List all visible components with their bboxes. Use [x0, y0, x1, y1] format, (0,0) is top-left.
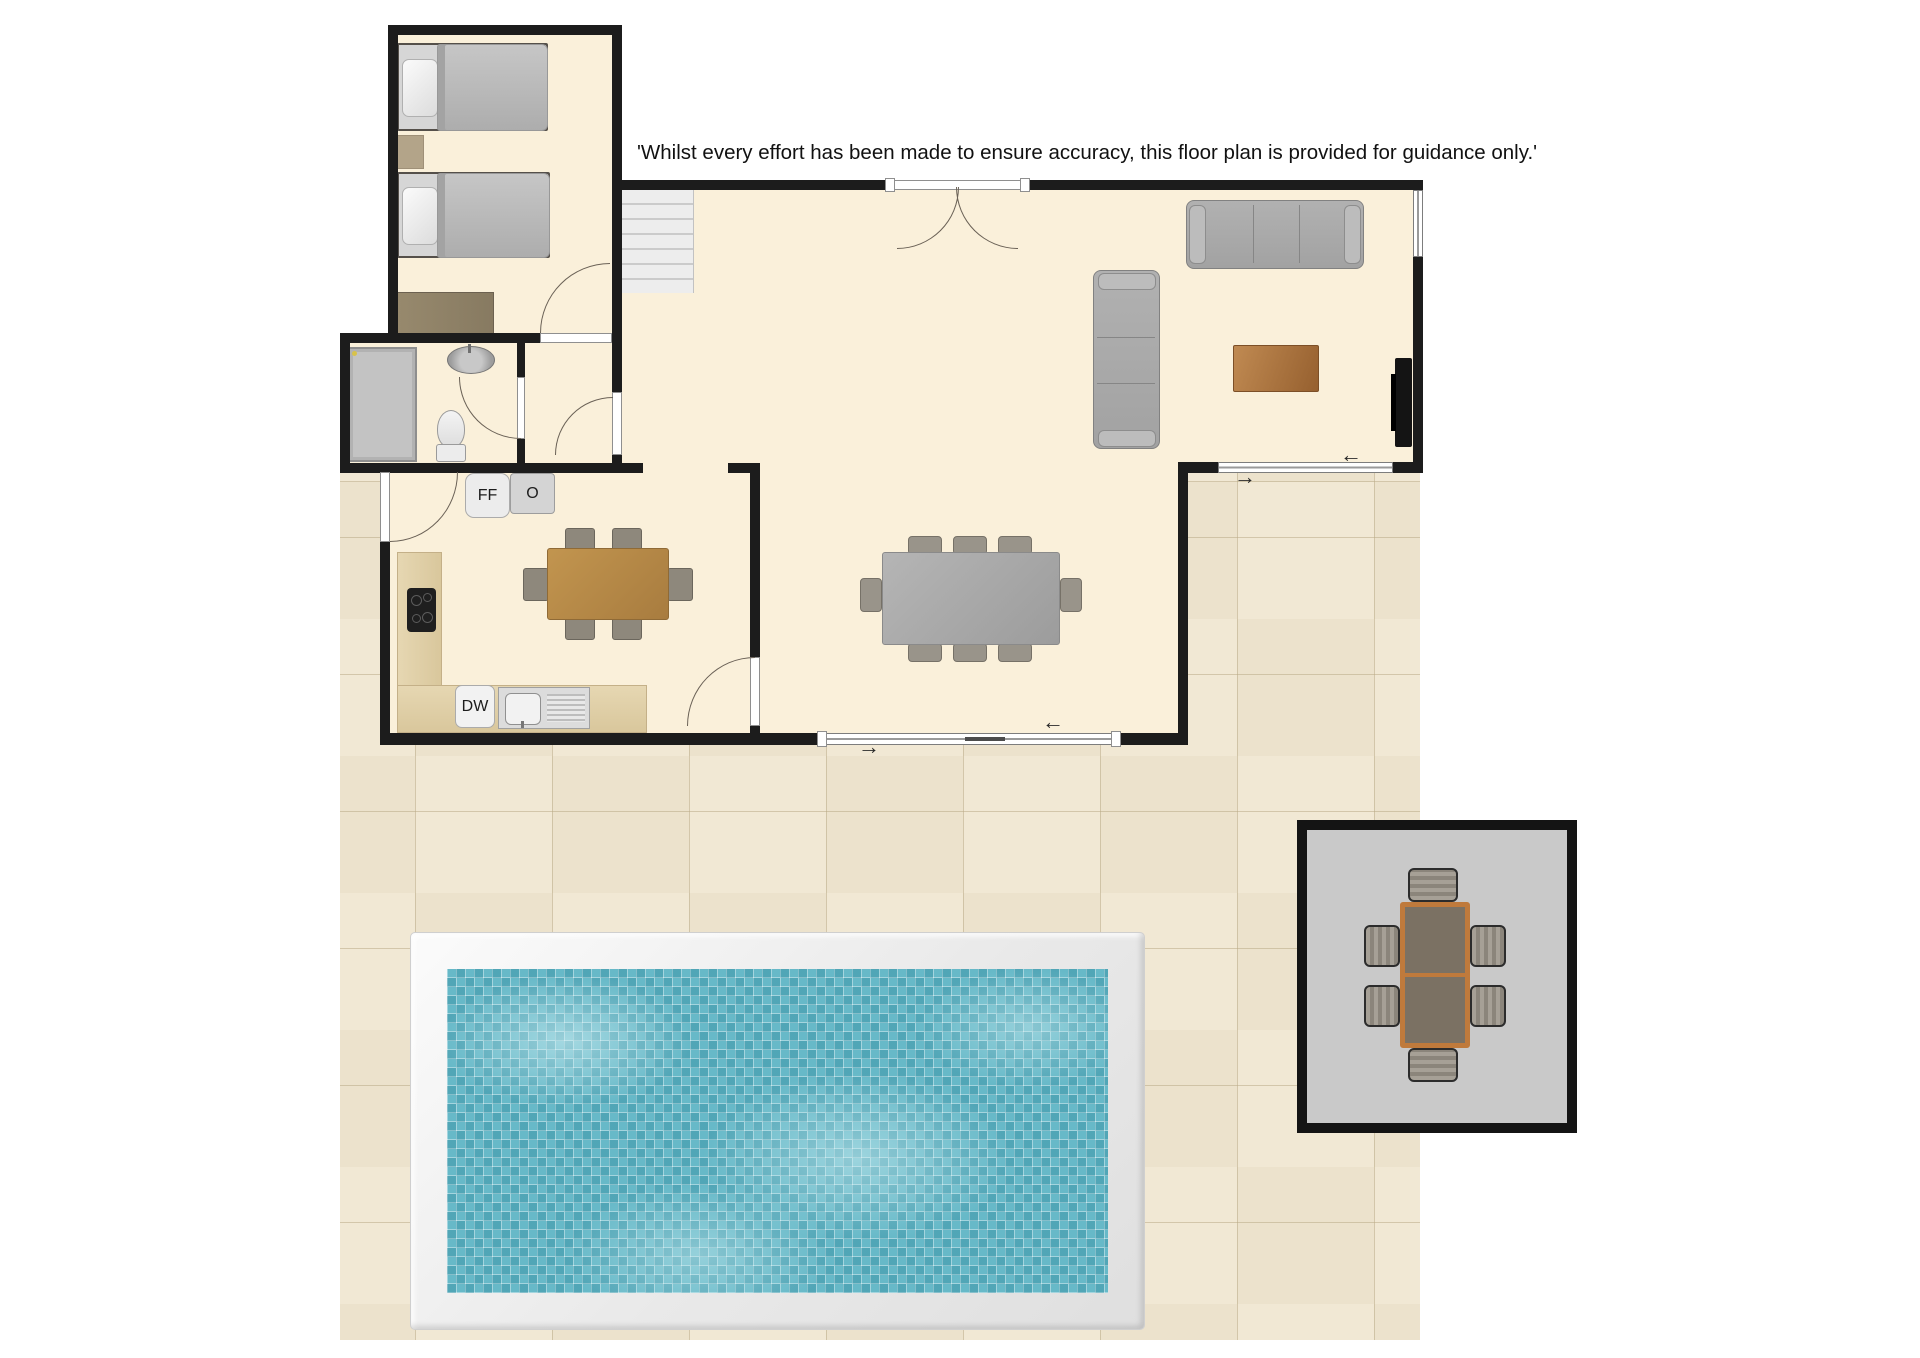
- outdoor-chair: [1408, 868, 1458, 902]
- sofa-arm: [1098, 430, 1156, 447]
- dresser: [397, 292, 494, 335]
- door-post: [1111, 731, 1121, 747]
- shower-head-icon: [352, 351, 357, 356]
- dining-chair: [908, 643, 942, 662]
- shower-tray: [348, 347, 417, 462]
- kitchen-sink-unit: [498, 687, 590, 729]
- kitchen-chair: [667, 568, 693, 601]
- wall: [1117, 733, 1188, 745]
- fridge-freezer-label: FF: [478, 487, 498, 505]
- outdoor-chair: [1470, 985, 1506, 1027]
- dining-chair: [1060, 578, 1082, 612]
- wall: [1022, 180, 1423, 190]
- dining-chair: [998, 643, 1032, 662]
- wall: [517, 343, 525, 377]
- burner-icon: [412, 614, 421, 623]
- sofa-horizontal: [1186, 200, 1364, 269]
- entry-arrow-icon: →: [858, 736, 880, 758]
- sofa-vertical: [1093, 270, 1160, 449]
- single-bed-2: [397, 172, 550, 258]
- wall: [1178, 462, 1188, 745]
- coffee-table: [1233, 345, 1319, 392]
- dishwasher: DW: [455, 685, 495, 728]
- sink-tap-icon: [521, 721, 524, 728]
- wall: [340, 333, 350, 473]
- wall: [517, 439, 525, 463]
- entry-arrow-icon: →: [1234, 466, 1256, 488]
- blanket: [437, 44, 548, 131]
- dining-chair: [953, 643, 987, 662]
- burner-icon: [411, 595, 422, 606]
- blanket: [437, 173, 550, 258]
- wall: [1413, 180, 1423, 190]
- sliding-door-overlap: [965, 737, 1005, 741]
- disclaimer-text: 'Whilst every effort has been made to en…: [637, 141, 1537, 165]
- pillow: [402, 187, 438, 245]
- kitchen-opening-floor: [643, 462, 728, 474]
- oven: O: [510, 473, 555, 514]
- burner-icon: [422, 612, 433, 623]
- bedroom-door-frame: [540, 333, 612, 343]
- kitchen-chair: [523, 568, 549, 601]
- burner-icon: [423, 593, 432, 602]
- hob: [407, 588, 436, 632]
- door-post: [817, 731, 827, 747]
- sofa-arm: [1344, 205, 1361, 264]
- wall: [750, 726, 760, 738]
- sofa-arm: [1098, 273, 1156, 290]
- fridge-freezer: FF: [465, 473, 510, 518]
- hall-door-frame: [612, 392, 622, 455]
- drainer: [547, 694, 585, 722]
- toilet-tank: [436, 444, 466, 462]
- floorplan-page: FF O DW: [0, 0, 1920, 1358]
- wall: [388, 25, 398, 343]
- sofa-seam: [1299, 205, 1300, 263]
- outdoor-chair: [1470, 925, 1506, 967]
- pillow: [402, 59, 438, 117]
- wall: [388, 25, 622, 35]
- door-post: [1020, 178, 1030, 192]
- outdoor-chair: [1364, 985, 1400, 1027]
- entry-arrow-icon: ←: [1340, 444, 1362, 466]
- wall: [1413, 257, 1423, 473]
- sofa-seam: [1253, 205, 1254, 263]
- sofa-seam: [1097, 383, 1155, 384]
- single-bed-1: [397, 43, 548, 131]
- tv-screen: [1391, 374, 1396, 431]
- outdoor-chair: [1408, 1048, 1458, 1082]
- kitchen-table: [547, 548, 669, 620]
- door-post: [885, 178, 895, 192]
- bathroom-sink: [447, 346, 495, 374]
- entry-arrow-icon: ←: [1042, 711, 1064, 733]
- wall: [340, 333, 540, 343]
- wall: [750, 463, 760, 657]
- kitchen-patio-door-frame: [380, 472, 390, 542]
- sofa-seam: [1097, 337, 1155, 338]
- sofa-arm: [1189, 205, 1206, 264]
- pool-water: [447, 969, 1108, 1293]
- outdoor-chair: [1364, 925, 1400, 967]
- dining-chair: [860, 578, 882, 612]
- sink-tap-icon: [468, 344, 471, 353]
- staircase: [622, 190, 694, 293]
- window: [1413, 190, 1423, 257]
- oven-label: O: [526, 485, 538, 503]
- wall: [612, 180, 893, 190]
- wall: [380, 542, 390, 745]
- outdoor-table-divider: [1405, 973, 1465, 977]
- tv: [1395, 358, 1412, 447]
- bedside-rug: [397, 135, 424, 169]
- wall: [1393, 462, 1423, 473]
- dining-table: [882, 552, 1060, 645]
- outdoor-table: [1400, 902, 1470, 1048]
- dishwasher-label: DW: [462, 698, 489, 716]
- toilet-bowl: [437, 410, 465, 448]
